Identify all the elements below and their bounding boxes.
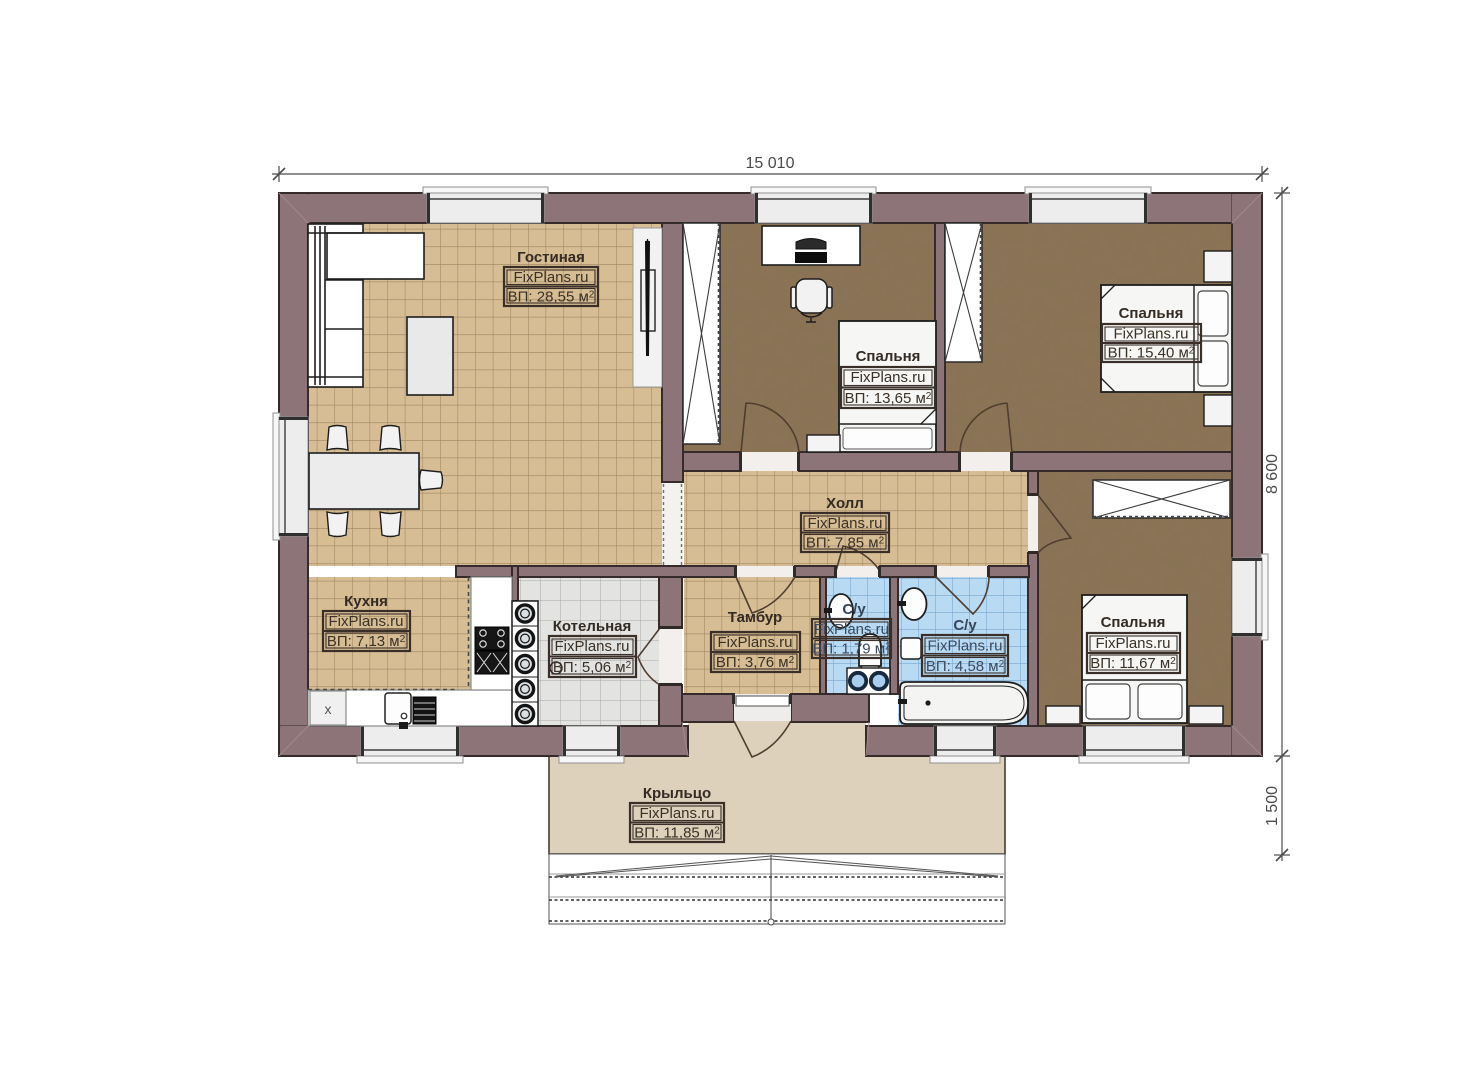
svg-text:Котельная: Котельная (553, 618, 632, 635)
svg-text:FixPlans.ru: FixPlans.ru (554, 638, 629, 655)
svg-text:FixPlans.ru: FixPlans.ru (1113, 326, 1188, 343)
svg-text:ВП: 7,13 м2: ВП: 7,13 м2 (327, 633, 406, 650)
svg-text:ВП: 15,40 м2: ВП: 15,40 м2 (1108, 345, 1195, 362)
svg-text:ВП: 5,06 м2: ВП: 5,06 м2 (553, 659, 632, 676)
svg-text:ВП: 28,55 м2: ВП: 28,55 м2 (508, 289, 595, 306)
svg-text:15 010: 15 010 (746, 155, 795, 172)
svg-text:ВП: 11,85 м2: ВП: 11,85 м2 (634, 825, 720, 842)
svg-text:ВП: 3,76 м2: ВП: 3,76 м2 (716, 654, 795, 671)
svg-text:FixPlans.ru: FixPlans.ru (814, 621, 889, 638)
svg-text:x: x (325, 701, 332, 717)
svg-text:FixPlans.ru: FixPlans.ru (807, 515, 882, 532)
svg-text:С/у: С/у (953, 617, 977, 634)
svg-text:FixPlans.ru: FixPlans.ru (927, 638, 1002, 655)
svg-text:Спальня: Спальня (856, 348, 921, 365)
svg-text:ВП: 1,79 м2: ВП: 1,79 м2 (812, 641, 891, 658)
svg-text:ВП: 13,65 м2: ВП: 13,65 м2 (845, 390, 932, 407)
svg-text:ВП: 4,58 м2: ВП: 4,58 м2 (926, 658, 1005, 675)
svg-text:FixPlans.ru: FixPlans.ru (850, 369, 925, 386)
svg-text:С/у: С/у (842, 601, 866, 618)
svg-text:1 500: 1 500 (1264, 786, 1281, 826)
svg-text:Спальня: Спальня (1101, 614, 1166, 631)
svg-text:Спальня: Спальня (1119, 305, 1184, 322)
svg-text:FixPlans.ru: FixPlans.ru (328, 613, 403, 630)
svg-text:Крыльцо: Крыльцо (643, 785, 711, 802)
svg-text:ВП: 11,67 м2: ВП: 11,67 м2 (1090, 655, 1176, 672)
svg-text:Холл: Холл (826, 495, 864, 512)
svg-text:FixPlans.ru: FixPlans.ru (639, 805, 714, 822)
svg-text:FixPlans.ru: FixPlans.ru (717, 634, 792, 651)
svg-text:Кухня: Кухня (344, 593, 388, 610)
svg-text:Гостиная: Гостиная (517, 249, 585, 266)
svg-text:8 600: 8 600 (1264, 454, 1281, 494)
svg-text:ВП: 7,85 м2: ВП: 7,85 м2 (806, 535, 885, 552)
svg-text:FixPlans.ru: FixPlans.ru (1095, 635, 1170, 652)
svg-text:Тамбур: Тамбур (728, 609, 782, 626)
svg-text:FixPlans.ru: FixPlans.ru (513, 269, 588, 286)
